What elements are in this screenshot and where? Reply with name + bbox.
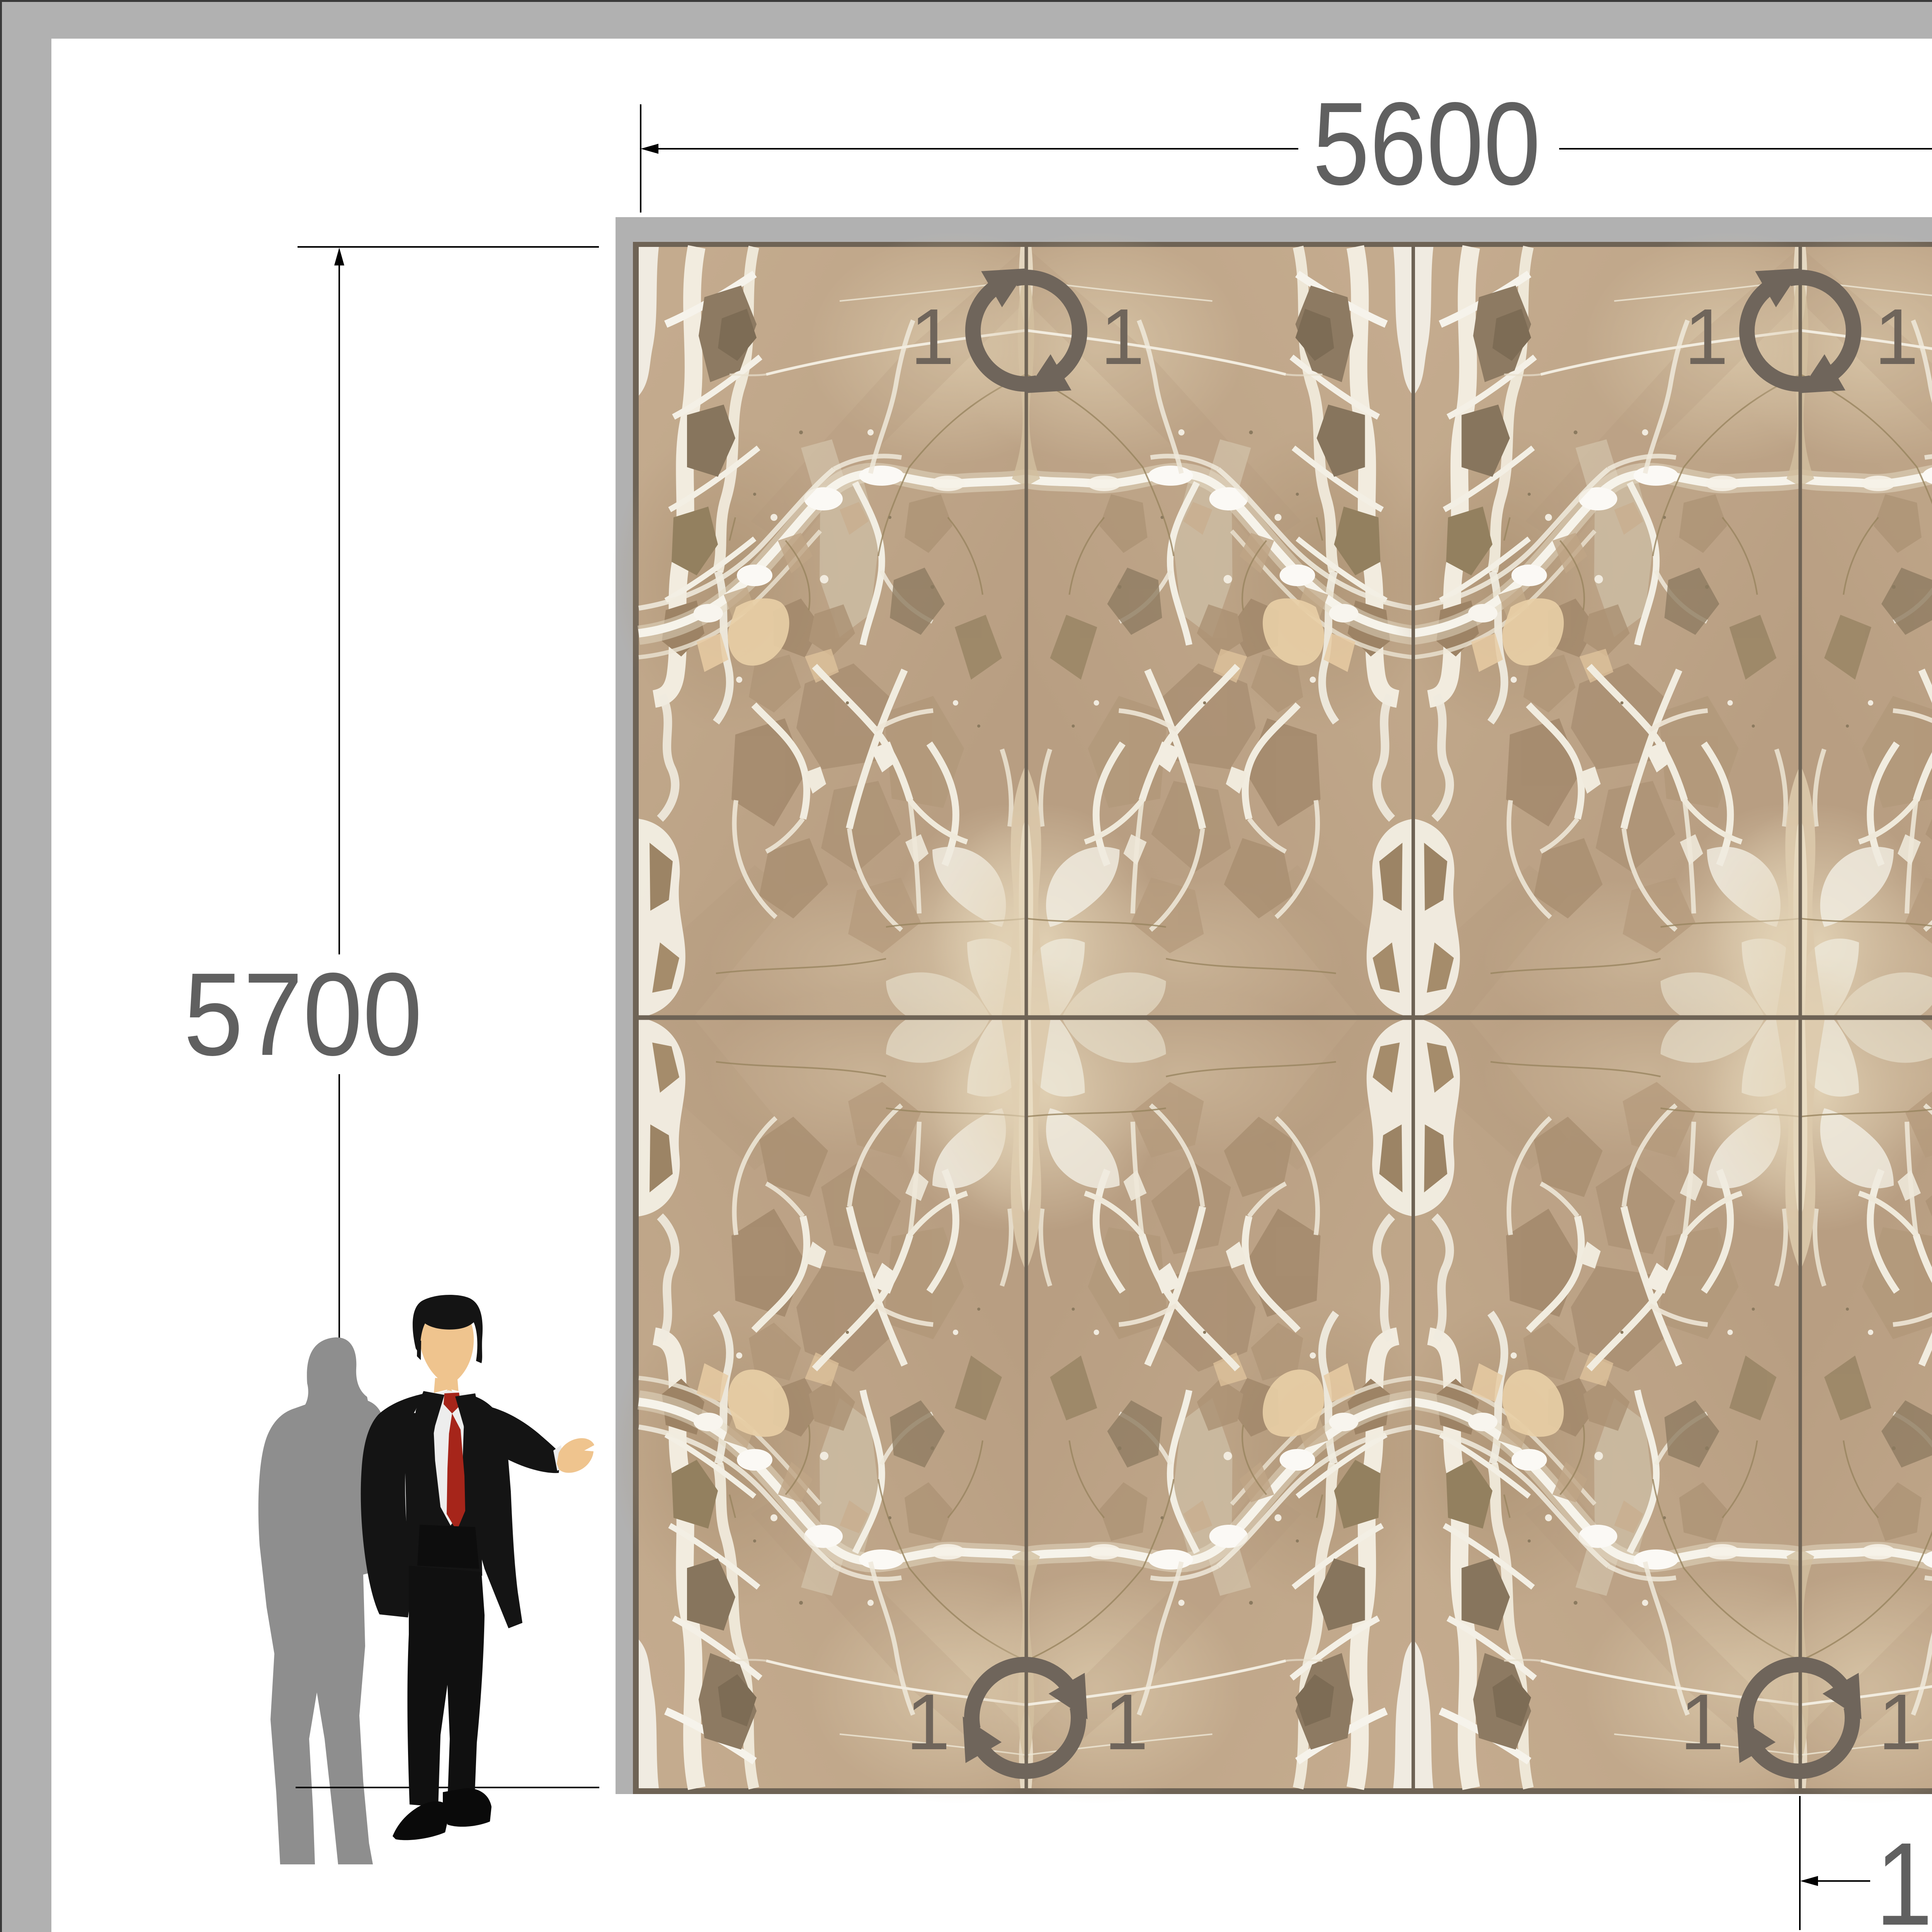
svg-text:1400: 1400 (1876, 1818, 1932, 1932)
svg-text:1: 1 (1104, 1678, 1148, 1766)
svg-text:1: 1 (906, 1678, 950, 1766)
svg-text:1: 1 (1878, 1678, 1922, 1766)
svg-text:5700: 5700 (184, 948, 422, 1080)
svg-text:1: 1 (1680, 1678, 1724, 1766)
svg-text:1: 1 (1684, 293, 1728, 381)
svg-text:1: 1 (1874, 293, 1918, 381)
svg-text:1: 1 (1100, 293, 1145, 381)
svg-text:5600: 5600 (1313, 78, 1541, 209)
svg-text:1: 1 (910, 293, 954, 381)
